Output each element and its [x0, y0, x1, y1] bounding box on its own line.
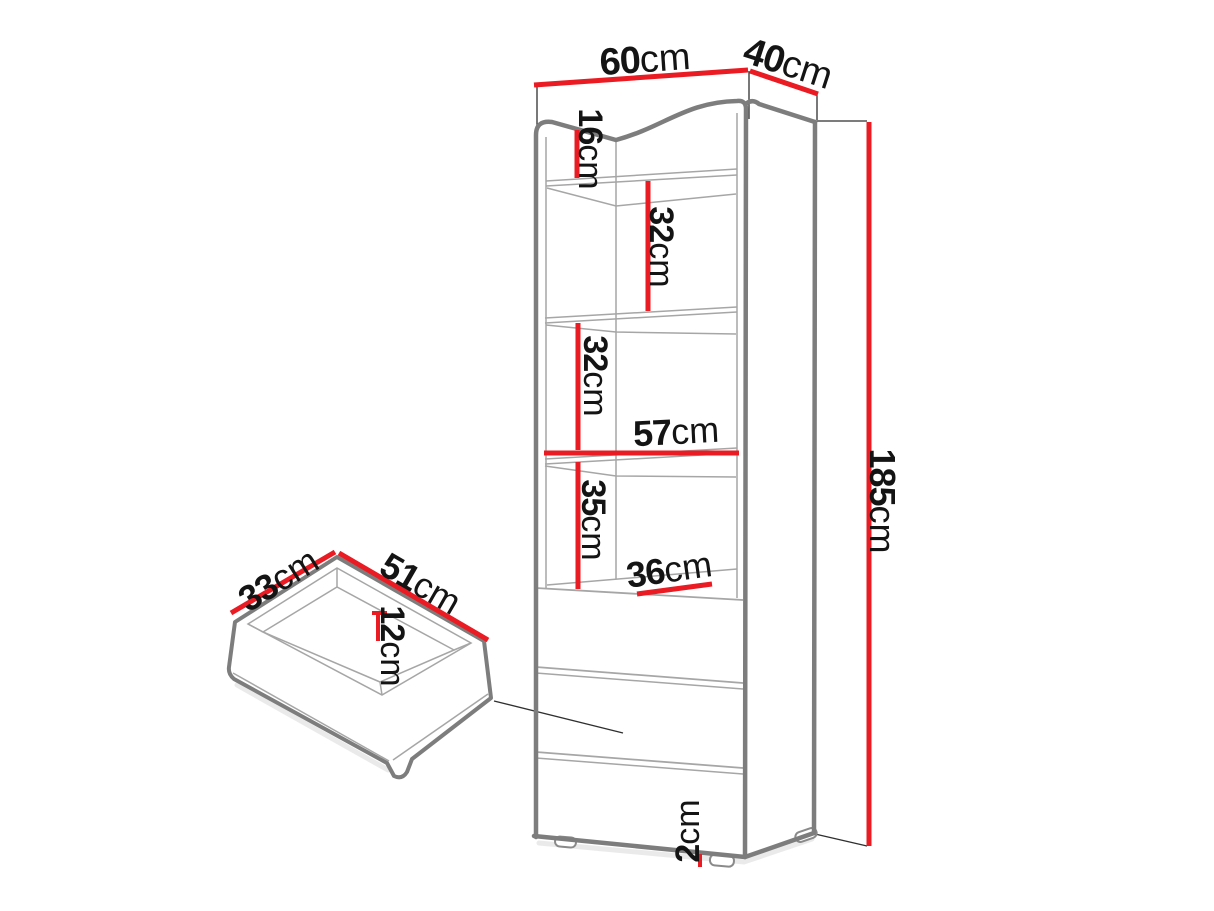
dim-label-height: 185cm — [863, 448, 904, 553]
dim-label-top-compartment: 16cm — [571, 108, 609, 189]
dim-label-width: 60cm — [598, 36, 692, 84]
dim-label-depth: 40cm — [738, 30, 837, 98]
height-extension-bottom — [815, 834, 867, 846]
shelf-1-surface — [547, 188, 736, 206]
dim-label-drawer-height: 12cm — [373, 605, 411, 686]
dim-label-lower-compartment: 35cm — [574, 479, 612, 560]
dim-label-middle-shelf-spacing: 32cm — [576, 335, 614, 416]
shelf-3-surface — [545, 466, 736, 477]
cabinet-drawing — [494, 71, 867, 867]
cabinet-front-outline — [536, 101, 746, 857]
cabinet-back-right-edge — [814, 122, 815, 833]
shelf-2-front-bottom — [545, 312, 737, 323]
dim-label-upper-shelf-spacing: 32cm — [642, 206, 680, 287]
furniture-dimension-diagram: 60cm 40cm 16cm 32cm 32cm 57cm 35cm 36cm … — [0, 0, 1214, 911]
shelf-2-surface — [546, 325, 736, 334]
diagram-canvas: 60cm 40cm 16cm 32cm 32cm 57cm 35cm 36cm … — [0, 0, 1214, 911]
dim-label-foot-height: 2cm — [669, 799, 707, 862]
shelf-2-front-top — [545, 307, 737, 318]
dim-label-interior-width: 57cm — [632, 408, 720, 453]
drawer-callout-line — [494, 701, 623, 733]
cabinet-side-top-edge — [747, 101, 815, 122]
